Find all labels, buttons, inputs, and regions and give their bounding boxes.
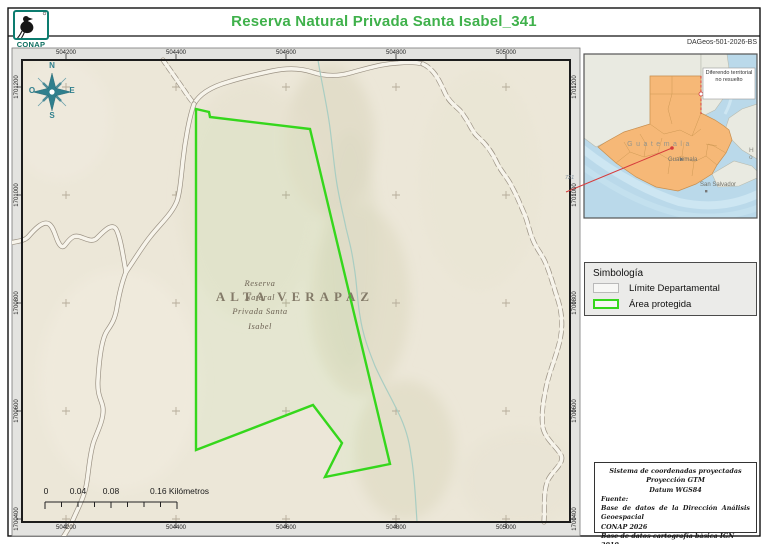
coord-right-5: 1700400 <box>571 499 579 539</box>
legend: Simbología Límite Departamental Área pro… <box>584 262 757 316</box>
inset-note-text: Diferendo territorial no resuelto <box>704 70 754 84</box>
inset-san-salvador-dot <box>705 190 707 192</box>
inset-city-label: Guatemala <box>668 157 697 163</box>
credits-source-1: Base de datos de la Dirección Análisis G… <box>601 504 750 523</box>
coord-top-2: 504400 <box>156 49 196 57</box>
coord-right-4: 1700600 <box>571 391 579 431</box>
scalebar-label-008: 0.08 <box>98 486 124 496</box>
credits-source-3: Base de datos cartografía básica IGN 201… <box>601 532 750 544</box>
compass-east-label: E <box>66 86 78 95</box>
coord-left-4: 1700600 <box>13 391 21 431</box>
legend-item-label: Área protegida <box>629 299 691 310</box>
reserve-label-line1: Reserva <box>200 278 320 288</box>
inset-country-label: Guatemala <box>604 141 716 148</box>
coord-right-2: 1701000 <box>571 175 579 215</box>
inset-depth-label: 721 <box>565 175 574 181</box>
coord-bottom-1: 504200 <box>46 524 86 532</box>
credits-projection: Proyección GTM <box>601 476 750 485</box>
page-title: Reserva Natural Privada Santa Isabel_341 <box>8 13 760 30</box>
coord-left-5: 1700400 <box>13 499 21 539</box>
reserve-label-line3: Privada Santa <box>200 306 320 316</box>
coord-right-1: 1701200 <box>571 67 579 107</box>
inset-honduras-label: H o <box>749 147 768 161</box>
inset-san-salvador-label: San Salvador <box>700 182 736 188</box>
coord-bottom-2: 504400 <box>156 524 196 532</box>
scalebar-label-004: 0.04 <box>65 486 91 496</box>
credits-projection-system: Sistema de coordenadas proyectadas <box>601 467 750 476</box>
compass-north-label: N <box>46 61 58 70</box>
reserve-label-line4: Isabel <box>200 321 320 331</box>
legend-item-label: Límite Departamental <box>629 283 720 294</box>
credits-box: Sistema de coordenadas proyectadas Proye… <box>594 462 757 533</box>
coord-bottom-4: 504800 <box>376 524 416 532</box>
coord-top-5: 505000 <box>486 49 526 57</box>
coord-left-3: 1700800 <box>13 283 21 323</box>
coord-top-3: 504600 <box>266 49 306 57</box>
coord-top-1: 504200 <box>46 49 86 57</box>
coord-left-1: 1701200 <box>13 67 21 107</box>
credits-source-2: CONAP 2026 <box>601 523 750 532</box>
protected-area-swatch <box>593 299 619 309</box>
department-label: ALTA VERAPAZ <box>185 289 405 305</box>
coord-top-4: 504800 <box>376 49 416 57</box>
map-document: Reserva Natural Privada Santa Isabel_341… <box>0 0 768 544</box>
coord-right-3: 1700800 <box>571 283 579 323</box>
coord-bottom-3: 504600 <box>266 524 306 532</box>
logo-caption: CONAP <box>11 40 51 49</box>
legend-title: Simbología <box>593 268 643 279</box>
coord-left-2: 1701000 <box>13 175 21 215</box>
scalebar-label-016: 0.16 Kilómetros <box>150 486 240 496</box>
compass-south-label: S <box>46 111 58 120</box>
doc-code: DAGeos-501-2026-BS <box>687 39 757 46</box>
credits-source-heading: Fuente: <box>601 495 750 504</box>
compass-west-label: O <box>26 86 38 95</box>
scalebar-label-0: 0 <box>41 486 51 496</box>
credits-datum: Datum WGS84 <box>601 486 750 495</box>
departmental-boundary-swatch <box>593 283 619 293</box>
coord-bottom-5: 505000 <box>486 524 526 532</box>
